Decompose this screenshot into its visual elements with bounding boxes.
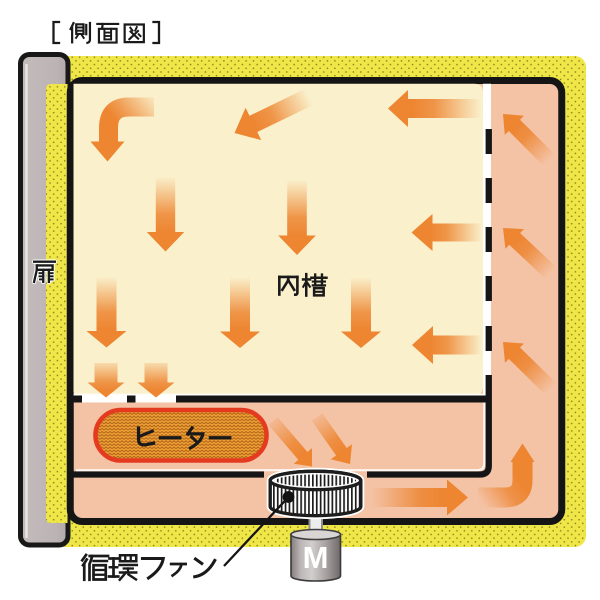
- svg-text:M: M: [303, 540, 329, 575]
